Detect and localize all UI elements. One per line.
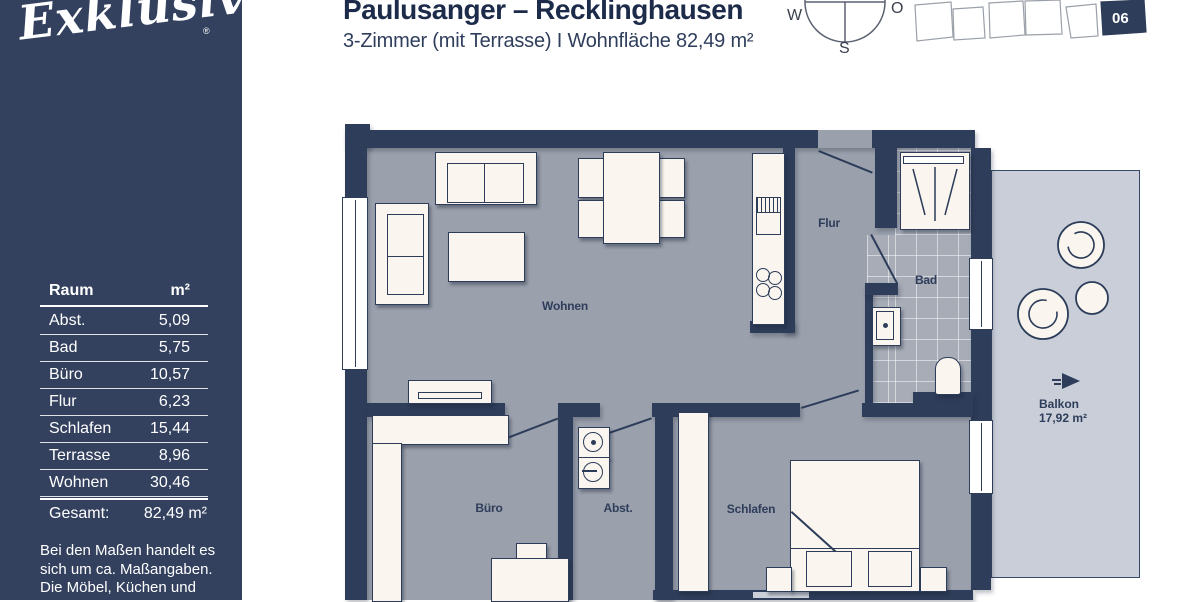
table-header-room: Raum (49, 282, 93, 300)
wall (971, 148, 991, 590)
wall (862, 403, 973, 417)
table-row: Schlafen 15,44 (40, 416, 208, 443)
shower (900, 152, 970, 230)
dining-chair (658, 200, 685, 238)
bedroom-window (969, 420, 993, 494)
wall (652, 403, 800, 417)
compass-south: S (839, 40, 850, 56)
sidebar: Exklusiv ® Raum m² Abst. 5,09 Bad 5,75 B… (0, 0, 242, 600)
room-area: 6,23 (159, 393, 190, 411)
office-desk (491, 558, 569, 602)
cooktop-burner (768, 286, 782, 300)
room-label-schlafen: Schlafen (727, 502, 775, 516)
room-area: 10,57 (150, 366, 190, 384)
balcony-name: Balkon (1039, 397, 1087, 411)
cooktop-burner (768, 271, 782, 285)
table-header-row: Raum m² (40, 278, 208, 304)
sofa-cushion (387, 214, 424, 257)
room-area: 15,44 (150, 420, 190, 438)
dryer-drum (583, 462, 603, 482)
balcony-label: Balkon 17,92 m² (1039, 397, 1087, 425)
room-label-wohnen: Wohnen (542, 299, 588, 313)
dryer (578, 457, 610, 489)
sofa-cushion (484, 163, 524, 203)
room-name: Schlafen (49, 420, 111, 438)
bathroom-window (969, 258, 993, 330)
washbasin (872, 307, 901, 346)
table-row: Wohnen 30,46 (40, 470, 208, 497)
wall (558, 403, 600, 417)
room-name: Bad (49, 339, 77, 357)
table-row: Terrasse 8,96 (40, 443, 208, 470)
window-sill (753, 592, 809, 598)
washer-dot (591, 440, 596, 445)
balcony-area: Balkon 17,92 m² (991, 170, 1140, 578)
room-label-flur: Flur (818, 216, 840, 230)
room-name: Büro (49, 366, 83, 384)
dining-chair (578, 158, 605, 198)
table-row: Büro 10,57 (40, 362, 208, 389)
table-total-row: Gesamt: 82,49 m² (40, 501, 208, 527)
compass-west: W (787, 7, 803, 24)
brand-logo: Exklusiv (15, 0, 230, 52)
balcony-size: 17,92 m² (1039, 411, 1087, 425)
table-row: Bad 5,75 (40, 335, 208, 362)
arrow-tail (1052, 379, 1061, 381)
blanket-line (791, 548, 919, 549)
table-divider (40, 498, 208, 500)
pillow (868, 551, 912, 587)
room-area: 5,09 (159, 312, 190, 330)
room-name: Abst. (49, 312, 85, 330)
kitchen-sink (756, 212, 781, 235)
dryer-line (582, 470, 597, 472)
kitchen-sink-drainer (756, 197, 781, 213)
wall (865, 283, 898, 295)
dining-chair (578, 200, 605, 238)
toilet (935, 357, 961, 395)
room-area-table: Raum m² Abst. 5,09 Bad 5,75 Büro 10,57 F… (40, 278, 208, 527)
sofa-cushion (387, 256, 424, 295)
room-name: Terrasse (49, 447, 110, 465)
total-value: 82,49 m² (144, 505, 207, 523)
balcony-furniture (992, 201, 1138, 381)
entrance-opening (818, 130, 872, 148)
table-row: Flur 6,23 (40, 389, 208, 416)
room-label-buero: Büro (475, 501, 502, 515)
siteplan-icon: 06 (905, 0, 1155, 60)
nightstand (920, 567, 947, 592)
wall (875, 148, 897, 228)
wall (655, 417, 673, 600)
table-header-area: m² (170, 282, 190, 300)
pillow (806, 551, 852, 587)
washbasin-drain (883, 323, 888, 328)
total-label: Gesamt: (49, 505, 109, 523)
office-shelf-left (372, 443, 402, 602)
room-label-bad: Bad (915, 273, 937, 287)
room-area: 30,46 (150, 474, 190, 492)
room-name: Flur (49, 393, 77, 411)
table-row: Abst. 5,09 (40, 308, 208, 335)
unit-number-badge: 06 (1112, 10, 1129, 27)
disclaimer-line: Die Möbel, Küchen und (40, 579, 225, 598)
shower-doors (901, 153, 969, 229)
wardrobe (678, 412, 709, 592)
disclaimer-line: sich um ca. Maßangaben. (40, 561, 225, 580)
table-divider (40, 305, 208, 307)
office-shelf-top (372, 415, 509, 445)
coffee-table (448, 232, 525, 282)
registered-trademark-icon: ® (203, 26, 210, 36)
compass-icon: W O S (785, 0, 915, 56)
dining-table (603, 152, 660, 244)
balcony-access-arrow-icon (1062, 373, 1080, 389)
dining-chair (658, 158, 685, 198)
compass-east: O (891, 0, 903, 17)
nightstand (766, 567, 792, 592)
arrow-tail (1054, 383, 1061, 385)
kitchen-counter (752, 153, 785, 325)
room-area: 8,96 (159, 447, 190, 465)
washing-machine (578, 427, 610, 459)
sideboard-detail (418, 392, 482, 399)
room-area: 5,75 (159, 339, 190, 357)
disclaimer-line: Bei den Maßen handelt es (40, 542, 225, 561)
room-label-abst: Abst. (603, 501, 632, 515)
room-name: Wohnen (49, 474, 108, 492)
sofa-cushion (447, 163, 486, 203)
disclaimer-text: Bei den Maßen handelt es sich um ca. Maß… (40, 542, 225, 600)
wall (345, 130, 975, 148)
living-room-window (342, 197, 368, 370)
